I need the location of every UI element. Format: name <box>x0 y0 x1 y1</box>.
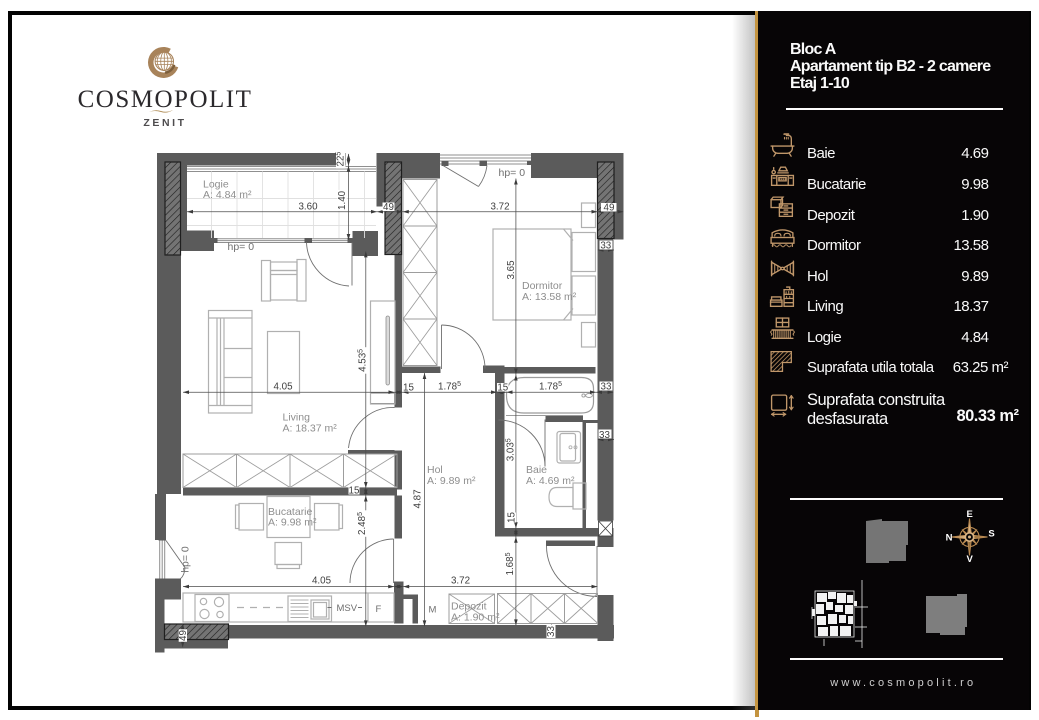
svg-text:1.685: 1.685 <box>505 552 516 575</box>
svg-text:A: 9.89 m²: A: 9.89 m² <box>427 475 476 487</box>
svg-text:33: 33 <box>546 626 557 637</box>
svg-text:3.035: 3.035 <box>506 438 517 461</box>
svg-text:3.72: 3.72 <box>451 576 470 587</box>
svg-text:A: 4.84 m²: A: 4.84 m² <box>203 189 252 201</box>
svg-text:1.785: 1.785 <box>438 381 461 392</box>
svg-text:33: 33 <box>600 241 611 252</box>
svg-text:hp= 0: hp= 0 <box>499 167 526 179</box>
svg-text:A: 4.69 m²: A: 4.69 m² <box>526 475 575 487</box>
svg-text:S: S <box>988 529 994 540</box>
svg-text:N: N <box>945 533 952 544</box>
svg-text:15: 15 <box>349 486 360 497</box>
svg-text:A: 9.98 m²: A: 9.98 m² <box>268 517 317 529</box>
svg-text:15: 15 <box>403 383 414 394</box>
svg-text:hp= 0: hp= 0 <box>228 241 255 253</box>
svg-text:F: F <box>376 604 382 615</box>
svg-text:E: E <box>966 509 972 520</box>
svg-text:15: 15 <box>497 383 508 394</box>
svg-text:4.05: 4.05 <box>273 382 293 393</box>
svg-text:M: M <box>429 605 437 616</box>
svg-text:1.785: 1.785 <box>539 381 562 392</box>
svg-text:A: 1.90 m²: A: 1.90 m² <box>451 612 500 624</box>
svg-text:A: 18.37 m²: A: 18.37 m² <box>283 423 338 435</box>
svg-text:3.60: 3.60 <box>298 202 318 213</box>
svg-text:1.40: 1.40 <box>337 190 348 210</box>
svg-text:33: 33 <box>599 430 610 441</box>
svg-text:49: 49 <box>178 630 189 641</box>
svg-text:33: 33 <box>601 381 612 392</box>
svg-text:4.87: 4.87 <box>413 489 424 508</box>
svg-text:A: 13.58 m²: A: 13.58 m² <box>522 291 577 303</box>
svg-text:MSV: MSV <box>337 603 358 614</box>
svg-text:4.05: 4.05 <box>312 576 332 587</box>
svg-text:49: 49 <box>604 202 615 213</box>
svg-text:49: 49 <box>383 202 394 213</box>
svg-text:V: V <box>966 554 973 563</box>
svg-text:3.72: 3.72 <box>490 202 509 213</box>
svg-text:15: 15 <box>507 512 518 523</box>
svg-text:hp= 0: hp= 0 <box>180 546 192 573</box>
svg-text:3.65: 3.65 <box>506 260 517 280</box>
